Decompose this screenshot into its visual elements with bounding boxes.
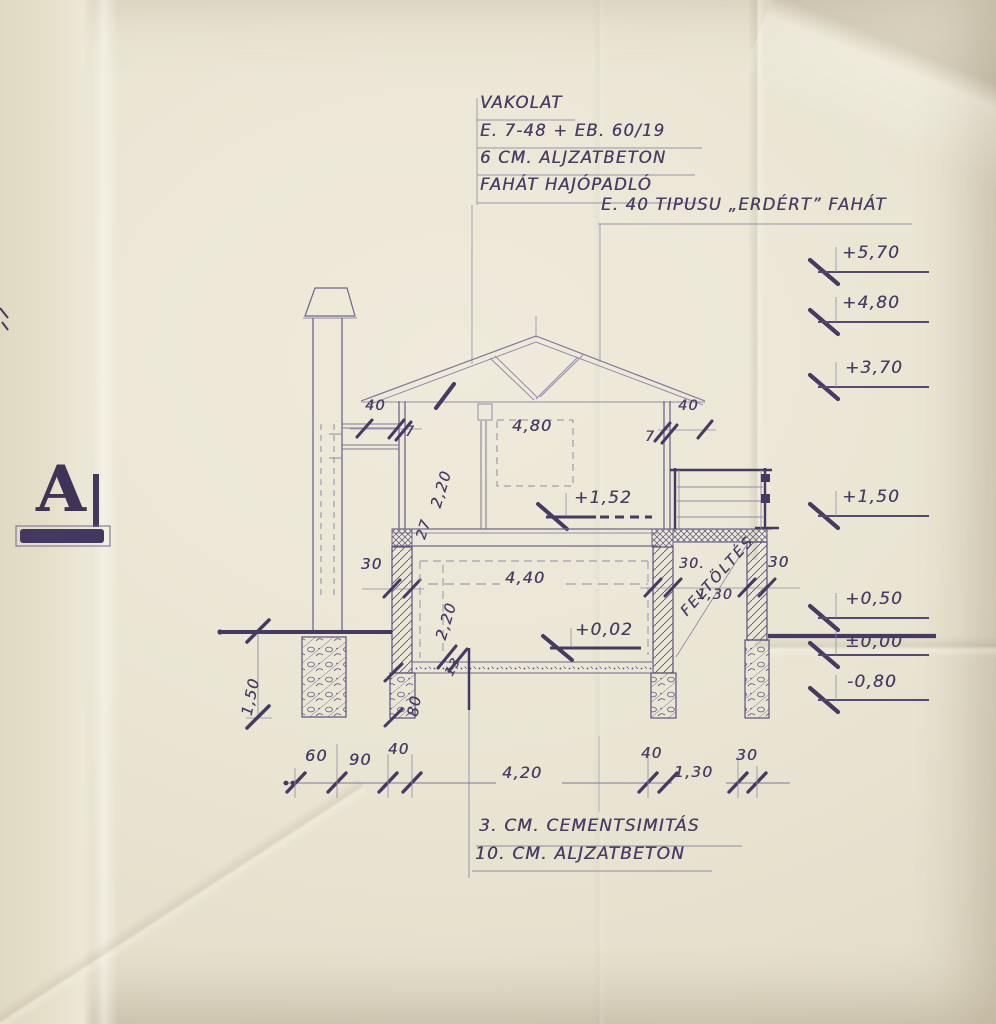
chain-130: 1,30 (674, 765, 713, 781)
dim-eave-left-7: 7 (405, 425, 415, 439)
dim-upper-width: 4,80 (512, 418, 552, 434)
chimney (303, 288, 399, 632)
dim-foundation-h: 80 (406, 694, 425, 718)
interior-post (481, 421, 486, 529)
storey-slab (392, 528, 779, 547)
level-inner-152: +1,52 (574, 490, 632, 507)
level-480: +4,80 (842, 295, 900, 312)
level-000: ±0,00 (845, 634, 903, 651)
note-aljzatbeton: 6 CM. ALJZATBETON (480, 150, 666, 167)
chain-40b: 40 (641, 746, 663, 761)
dim-left-wall: 30 (361, 557, 383, 572)
chimney-foundation (302, 637, 346, 717)
chain-40a: 40 (388, 742, 410, 757)
foundations (302, 637, 769, 718)
dim-terrace-outer: 30 (768, 555, 790, 570)
level-inner-002: +0,02 (575, 622, 633, 639)
chimney-flue-dashed (321, 424, 334, 598)
note-aljzatbeton-10: 10. CM. ALJZATBETON (475, 846, 685, 863)
level-050: +0,50 (845, 591, 903, 608)
note-type-code: E. 7-48 + EB. 60/19 (480, 123, 665, 140)
roof-note: E. 40 TIPUSU „ERDÉRT” FAHÁT (601, 197, 887, 214)
chain-60: 60 (305, 748, 328, 764)
dim-eave-right: 40 (678, 399, 699, 414)
roof (361, 316, 705, 408)
level-570: +5,70 (842, 245, 900, 262)
section-label: A (36, 458, 86, 522)
note-vakolat: VAKOLAT (480, 95, 563, 112)
dim-eave-right-7: 7 (645, 430, 655, 444)
level-370: +3,70 (845, 360, 903, 377)
dim-eave-left: 40 (365, 399, 386, 414)
dim-terrace-width: 1,30 (697, 588, 733, 602)
dim-terrace-wall: 30. (679, 557, 705, 571)
blueprint-canvas: VAKOLAT E. 7-48 + EB. 60/19 6 CM. ALJZAT… (0, 0, 996, 1024)
note-cementsimitas: 3. CM. CEMENTSIMITÁS (479, 818, 700, 835)
dim-lower-width: 4,40 (505, 570, 545, 586)
chimney-cap (305, 288, 355, 316)
chain-90: 90 (349, 752, 372, 768)
chain-420: 4,20 (502, 765, 542, 781)
edge-tick (0, 308, 8, 330)
roof-slope-tick (436, 384, 454, 408)
note-hajopadlo: FAHÁT HAJÓPADLÓ (480, 177, 652, 194)
chain-30: 30 (736, 748, 758, 764)
level-150: +1,50 (842, 489, 900, 506)
level-m080: -0,80 (847, 674, 897, 691)
